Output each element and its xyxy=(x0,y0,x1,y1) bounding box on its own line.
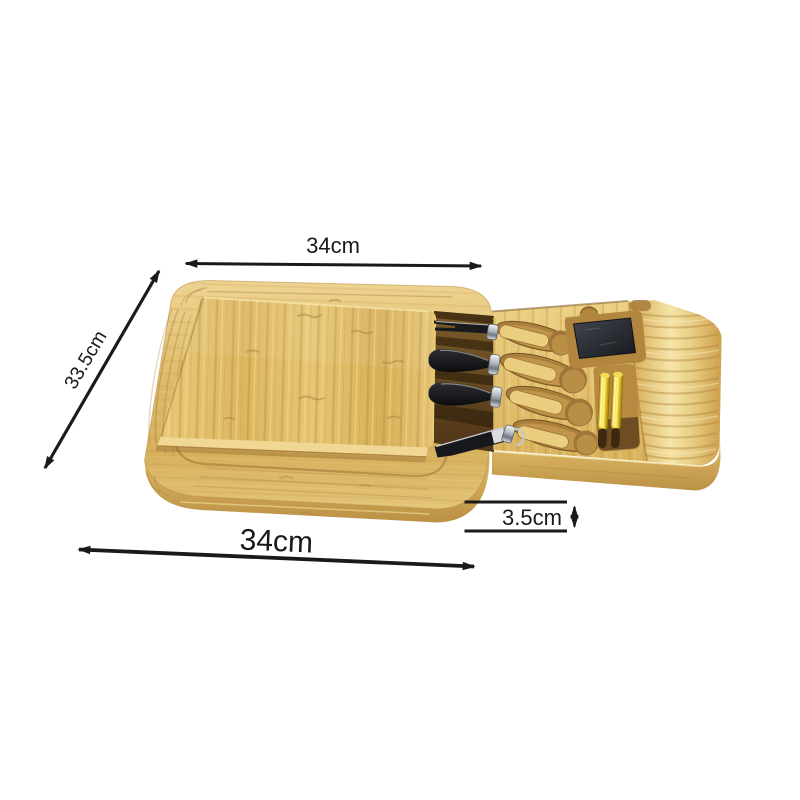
knife-1-ferrule xyxy=(486,324,498,341)
slate-tile xyxy=(574,318,636,359)
drawer-height-label: 3.5cm xyxy=(502,505,562,530)
dim-left-depth: 33.5cm xyxy=(45,271,159,468)
top-width-label: 34cm xyxy=(306,233,360,258)
bottom-width-label: 34cm xyxy=(239,523,314,559)
left-depth-label: 33.5cm xyxy=(60,327,111,393)
product-photo-page: 34cm 33.5cm 34cm 3.5cm xyxy=(0,0,800,800)
left-depth-arrow xyxy=(45,271,159,468)
dim-top-width: 34cm xyxy=(186,233,481,266)
cutting-board xyxy=(156,297,437,463)
drawer-handle-notch xyxy=(630,300,651,311)
top-width-arrow xyxy=(186,264,481,267)
chalk-pens xyxy=(593,364,640,452)
dim-bottom-width: 34cm xyxy=(79,523,474,566)
product-photo: 34cm 33.5cm 34cm 3.5cm xyxy=(0,0,800,800)
dim-drawer-height: 3.5cm xyxy=(465,502,575,531)
